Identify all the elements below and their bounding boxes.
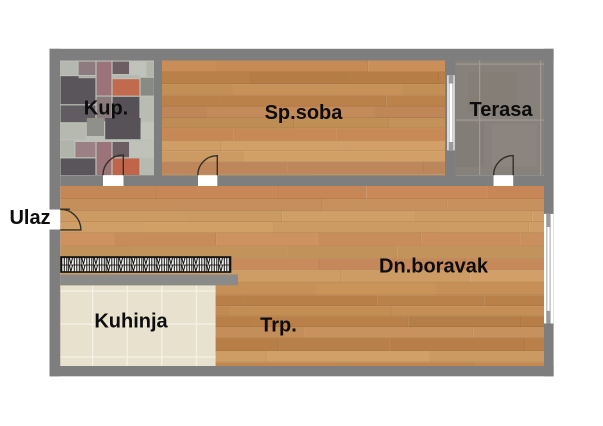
svg-text:Terasa: Terasa [469, 99, 533, 121]
svg-text:Sp.soba: Sp.soba [265, 102, 344, 124]
svg-text:Ulaz: Ulaz [9, 207, 50, 229]
svg-text:Kup.: Kup. [84, 97, 128, 119]
svg-text:Trp.: Trp. [260, 315, 297, 337]
svg-text:Dn.boravak: Dn.boravak [379, 256, 489, 278]
svg-text:Kuhinja: Kuhinja [94, 310, 168, 332]
